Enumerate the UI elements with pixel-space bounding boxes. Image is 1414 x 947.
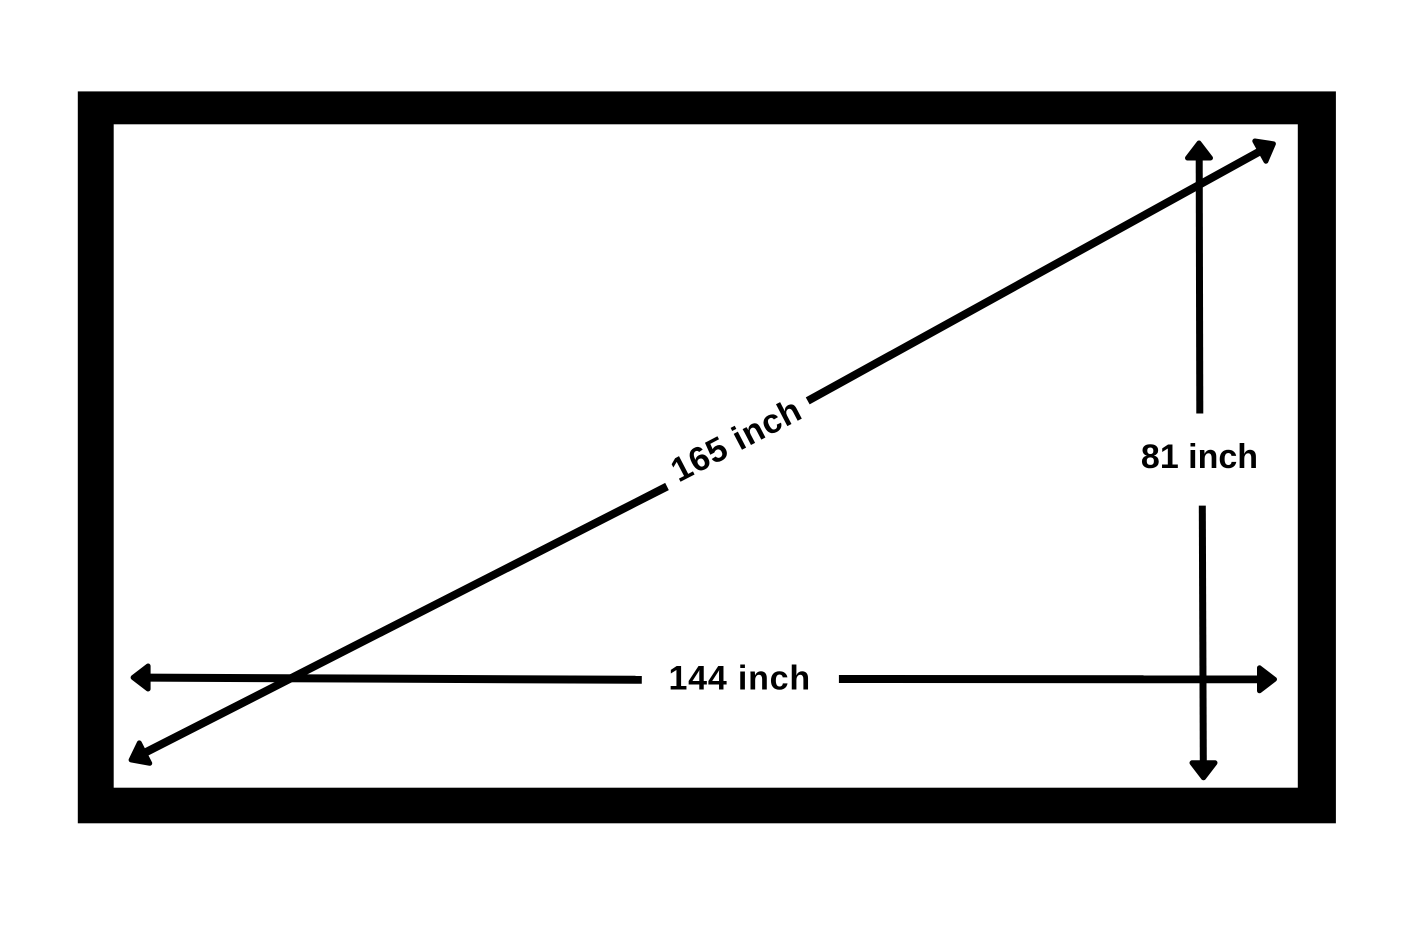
svg-text:144 inch: 144 inch	[668, 660, 810, 698]
svg-text:81 inch: 81 inch	[1141, 438, 1258, 476]
